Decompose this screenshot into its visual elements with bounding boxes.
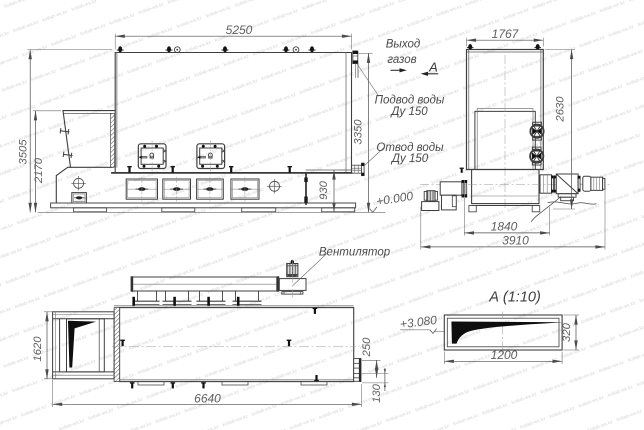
svg-text:3350: 3350	[353, 119, 365, 145]
svg-text:2630: 2630	[554, 96, 566, 123]
svg-text:Отвод воды: Отвод воды	[376, 142, 444, 154]
svg-text:320: 320	[561, 322, 573, 342]
svg-text:Выход: Выход	[386, 39, 421, 51]
svg-text:Подвод воды: Подвод воды	[375, 95, 445, 107]
svg-text:1767: 1767	[492, 27, 520, 41]
svg-text:Ду 150: Ду 150	[390, 153, 429, 165]
svg-text:130: 130	[371, 383, 383, 403]
svg-text:1200: 1200	[491, 348, 518, 362]
svg-text:3910: 3910	[502, 234, 529, 248]
svg-text:3505: 3505	[18, 139, 30, 165]
svg-text:Вентилятор: Вентилятор	[319, 247, 391, 259]
svg-text:А: А	[428, 60, 438, 75]
svg-text:2170: 2170	[33, 157, 45, 184]
svg-text:1840: 1840	[491, 220, 518, 234]
svg-text:газов: газов	[387, 54, 416, 66]
svg-text:1620: 1620	[32, 336, 44, 362]
svg-text:5250: 5250	[226, 23, 253, 37]
svg-text:А (1:10): А (1:10)	[488, 290, 541, 306]
svg-text:6640: 6640	[194, 391, 221, 405]
svg-text:250: 250	[361, 337, 373, 358]
svg-text:Ду 150: Ду 150	[389, 106, 428, 118]
svg-text:930: 930	[318, 180, 330, 200]
